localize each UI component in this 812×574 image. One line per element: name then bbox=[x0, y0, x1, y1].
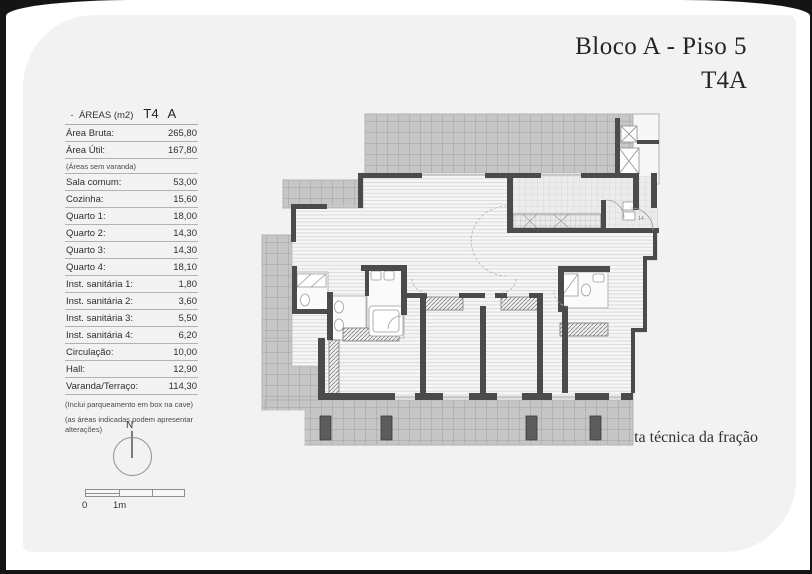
scanned-floorplan-page: Bloco A - Piso 5 T4A Planta técnica da f… bbox=[0, 0, 812, 574]
table-row: Cozinha: 15,60 bbox=[65, 191, 198, 208]
row-label: Inst. sanitária 2: bbox=[66, 296, 133, 307]
row-label: Quarto 3: bbox=[66, 245, 106, 256]
kitchen-counter bbox=[513, 214, 601, 228]
row-value: 12,90 bbox=[173, 364, 197, 375]
north-compass: N bbox=[108, 420, 156, 482]
compass-circle-icon bbox=[113, 437, 152, 476]
toilet bbox=[335, 301, 344, 313]
toilet bbox=[301, 294, 310, 306]
scale-one-meter-label: 1m bbox=[113, 500, 126, 511]
row-label: Quarto 2: bbox=[66, 228, 106, 239]
bathtub bbox=[297, 274, 326, 287]
areas-table: - ÁREAS (m2) T4 A Área Bruta: 265,80 Áre… bbox=[65, 104, 198, 435]
scale-bar-half-line bbox=[86, 493, 119, 494]
terrace-left-strip bbox=[283, 180, 363, 208]
row-label: Hall: bbox=[66, 364, 85, 375]
row-label: Área Útil: bbox=[66, 145, 105, 156]
row-value: 15,60 bbox=[173, 194, 197, 205]
sink bbox=[593, 274, 604, 282]
row-value: 1,80 bbox=[179, 279, 198, 290]
table-row: Inst. sanitária 2: 3,60 bbox=[65, 293, 198, 310]
entrance-door-number: 14 bbox=[638, 216, 644, 222]
row-label: Quarto 1: bbox=[66, 211, 106, 222]
row-value: 6,20 bbox=[179, 330, 198, 341]
table-row: Área Útil: 167,80 bbox=[65, 142, 198, 159]
scale-bar-divider bbox=[119, 490, 120, 496]
row-label: Sala comum: bbox=[66, 177, 121, 188]
table-row: Quarto 2: 14,30 bbox=[65, 225, 198, 242]
table-row: Sala comum: 53,00 bbox=[65, 174, 198, 191]
row-value: 265,80 bbox=[168, 128, 197, 139]
row-label: Inst. sanitária 4: bbox=[66, 330, 133, 341]
header-bullet: - bbox=[65, 110, 79, 120]
table-row: Inst. sanitária 4: 6,20 bbox=[65, 327, 198, 344]
row-value: 114,30 bbox=[169, 381, 197, 392]
sink bbox=[371, 271, 381, 280]
row-value: 5,50 bbox=[179, 313, 198, 324]
plan-title-block: Bloco A - Piso 5 T4A bbox=[480, 33, 747, 95]
row-label: Cozinha: bbox=[66, 194, 104, 205]
row-label: Inst. sanitária 3: bbox=[66, 313, 133, 324]
row-value: 14,30 bbox=[173, 228, 197, 239]
appliance bbox=[623, 212, 635, 220]
areas-table-rows: Área Bruta: 265,80 Área Útil: 167,80 (Ár… bbox=[65, 125, 198, 395]
row-label: Circulação: bbox=[66, 347, 114, 358]
table-row: Quarto 4: 18,10 bbox=[65, 259, 198, 276]
table-row: (Áreas sem varanda) bbox=[65, 159, 198, 174]
wardrobe bbox=[423, 297, 463, 310]
block-floor-title: Bloco A - Piso 5 bbox=[480, 33, 747, 61]
pillar bbox=[526, 416, 537, 440]
pillar bbox=[590, 416, 601, 440]
table-row: Quarto 3: 14,30 bbox=[65, 242, 198, 259]
pillar bbox=[381, 416, 392, 440]
table-row: Hall: 12,90 bbox=[65, 361, 198, 378]
terrace-left-column bbox=[262, 235, 293, 343]
sink bbox=[384, 271, 394, 280]
scale-bar-divider bbox=[152, 490, 153, 496]
row-label: Inst. sanitária 1: bbox=[66, 279, 133, 290]
row-label: Varanda/Terraço: bbox=[66, 381, 138, 392]
row-label: Área Bruta: bbox=[66, 128, 114, 139]
row-value: 18,00 bbox=[173, 211, 197, 222]
table-row: Inst. sanitária 1: 1,80 bbox=[65, 276, 198, 293]
floor-plan-drawing: 14 bbox=[255, 110, 665, 450]
kitchen-floor bbox=[513, 176, 601, 218]
row-value: 167,80 bbox=[168, 145, 197, 156]
unit-type-title: T4A bbox=[480, 67, 747, 95]
row-label: Quarto 4: bbox=[66, 262, 106, 273]
areas-table-header: - ÁREAS (m2) T4 A bbox=[65, 104, 198, 125]
toilet bbox=[582, 284, 591, 296]
terrace-step-notch bbox=[259, 411, 304, 448]
wardrobe bbox=[329, 340, 339, 394]
table-row: Varanda/Terraço: 114,30 bbox=[65, 378, 198, 395]
scale-zero-label: 0 bbox=[82, 500, 87, 511]
wardrobe bbox=[501, 297, 539, 310]
scale-bar-graphic bbox=[85, 489, 185, 497]
table-row: Quarto 1: 18,00 bbox=[65, 208, 198, 225]
table-row: Inst. sanitária 3: 5,50 bbox=[65, 310, 198, 327]
row-value: 14,30 bbox=[173, 245, 197, 256]
north-label: N bbox=[126, 420, 133, 431]
bidet bbox=[335, 319, 344, 331]
table-footnote: (Inclui parqueamento em box na cave) bbox=[65, 400, 198, 410]
header-title: ÁREAS (m2) bbox=[79, 110, 133, 121]
header-typology: T4 bbox=[143, 106, 158, 121]
table-row: Área Bruta: 265,80 bbox=[65, 125, 198, 142]
row-value: 3,60 bbox=[179, 296, 198, 307]
row-label: (Áreas sem varanda) bbox=[66, 162, 136, 171]
table-row: Circulação: 10,00 bbox=[65, 344, 198, 361]
row-value: 10,00 bbox=[173, 347, 197, 358]
scale-bar: 0 1m bbox=[85, 489, 185, 512]
row-value: 53,00 bbox=[173, 177, 197, 188]
pillar bbox=[320, 416, 331, 440]
row-value: 18,10 bbox=[173, 262, 197, 273]
header-fraction: A bbox=[168, 106, 177, 121]
